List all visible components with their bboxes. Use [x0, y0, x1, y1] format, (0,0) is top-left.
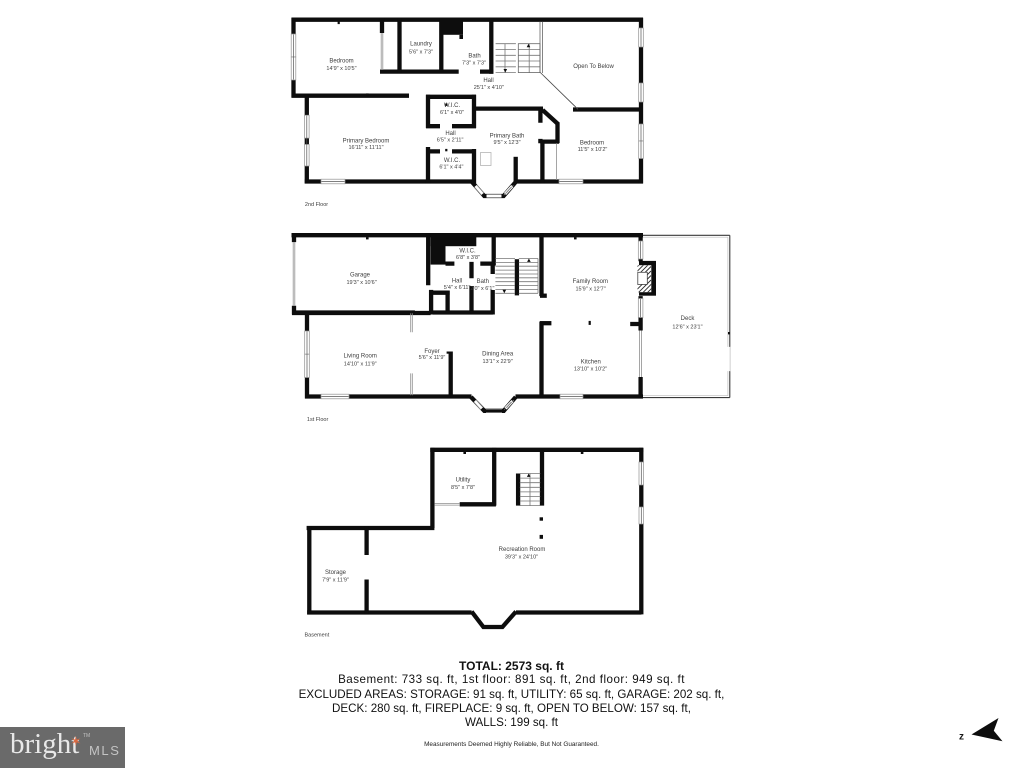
svg-text:6'1" x 4'0": 6'1" x 4'0": [440, 110, 464, 116]
svg-text:Hall: Hall: [483, 78, 493, 84]
svg-text:6'8" x 3'8": 6'8" x 3'8": [456, 255, 480, 261]
svg-text:13'10" x 10'2": 13'10" x 10'2": [574, 366, 607, 372]
svg-text:Bath: Bath: [477, 279, 489, 285]
svg-text:14'10" x 11'9": 14'10" x 11'9": [344, 361, 377, 367]
svg-text:Garage: Garage: [350, 272, 371, 278]
svg-text:Kitchen: Kitchen: [581, 360, 601, 366]
svg-text:Bedroom: Bedroom: [329, 59, 353, 65]
svg-text:11'5" x 10'2": 11'5" x 10'2": [578, 147, 608, 153]
svg-text:Bath: Bath: [468, 54, 480, 60]
svg-text:2nd Floor: 2nd Floor: [305, 202, 328, 208]
svg-text:8'5" x 7'8": 8'5" x 7'8": [451, 485, 475, 491]
svg-text:Basement: Basement: [305, 633, 330, 639]
svg-text:Family Room: Family Room: [573, 279, 608, 285]
svg-text:2'0" x 6'1": 2'0" x 6'1": [470, 286, 494, 292]
svg-text:5'6" x 11'9": 5'6" x 11'9": [419, 355, 446, 361]
svg-text:5'4" x 6'11": 5'4" x 6'11": [444, 285, 471, 291]
svg-text:25'1" x 4'10": 25'1" x 4'10": [474, 85, 504, 91]
svg-text:Primary Bath: Primary Bath: [490, 133, 525, 139]
svg-text:5'6" x 7'3": 5'6" x 7'3": [409, 49, 433, 55]
svg-text:Utility: Utility: [456, 478, 471, 484]
svg-text:W.I.C.: W.I.C.: [459, 248, 476, 254]
svg-text:Living Room: Living Room: [344, 354, 377, 360]
svg-text:16'11" x 11'11": 16'11" x 11'11": [348, 145, 383, 151]
svg-text:14'9" x 10'5": 14'9" x 10'5": [326, 66, 356, 72]
svg-text:9'5" x 12'3": 9'5" x 12'3": [493, 140, 520, 146]
svg-text:39'3" x 24'10": 39'3" x 24'10": [505, 555, 538, 561]
svg-text:W.I.C.: W.I.C.: [444, 158, 461, 164]
svg-text:19'3" x 10'6": 19'3" x 10'6": [347, 280, 377, 286]
svg-text:Deck: Deck: [681, 316, 696, 322]
svg-text:6'1" x 4'4": 6'1" x 4'4": [439, 165, 463, 171]
svg-text:Primary Bedroom: Primary Bedroom: [343, 139, 390, 145]
svg-text:Dining Area: Dining Area: [482, 352, 514, 358]
svg-text:7'3" x 7'3": 7'3" x 7'3": [462, 60, 486, 66]
svg-text:15'9" x 12'7": 15'9" x 12'7": [576, 286, 606, 292]
svg-text:Hall: Hall: [452, 278, 462, 284]
svg-text:7'9" x 11'9": 7'9" x 11'9": [322, 578, 349, 584]
svg-text:Hall: Hall: [445, 131, 455, 137]
svg-text:Foyer: Foyer: [424, 349, 439, 355]
svg-text:Bedroom: Bedroom: [580, 140, 604, 146]
svg-text:Laundry: Laundry: [410, 42, 432, 48]
svg-text:1st Floor: 1st Floor: [307, 417, 329, 423]
svg-text:6'5" x 2'11": 6'5" x 2'11": [437, 138, 464, 144]
svg-text:13'1" x 22'9": 13'1" x 22'9": [483, 359, 513, 365]
svg-text:12'6" x 23'1": 12'6" x 23'1": [672, 324, 702, 330]
svg-text:Recreation Room: Recreation Room: [499, 547, 546, 553]
svg-text:Storage: Storage: [325, 570, 347, 576]
svg-text:Open To Below: Open To Below: [573, 64, 614, 70]
